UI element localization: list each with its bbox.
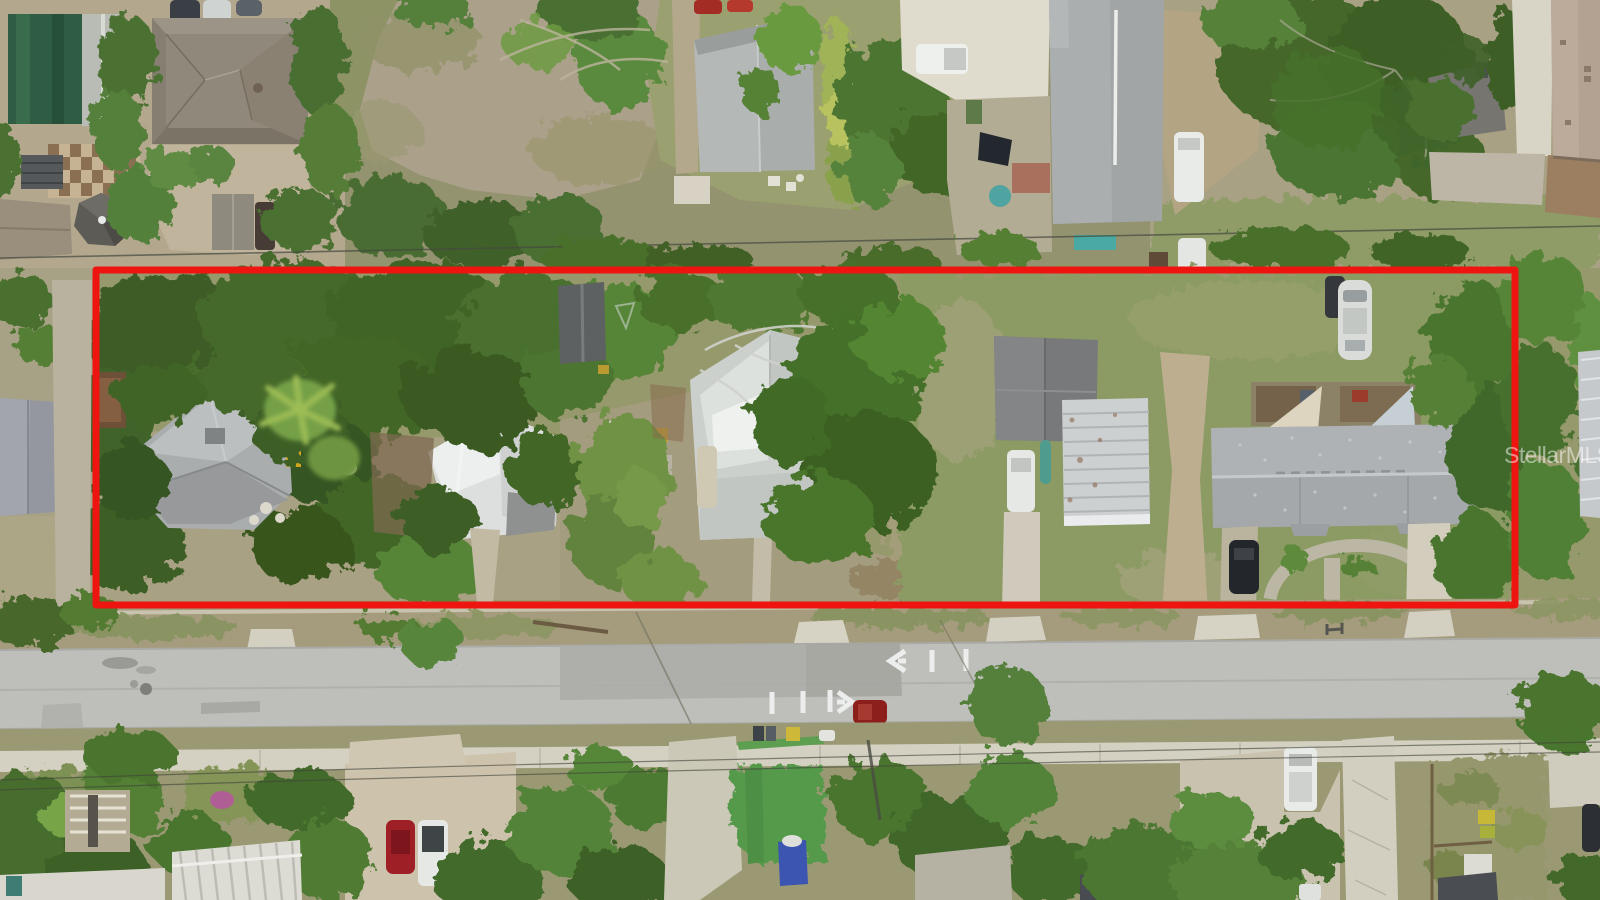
svg-text:StellarMLS: StellarMLS xyxy=(1504,442,1600,468)
